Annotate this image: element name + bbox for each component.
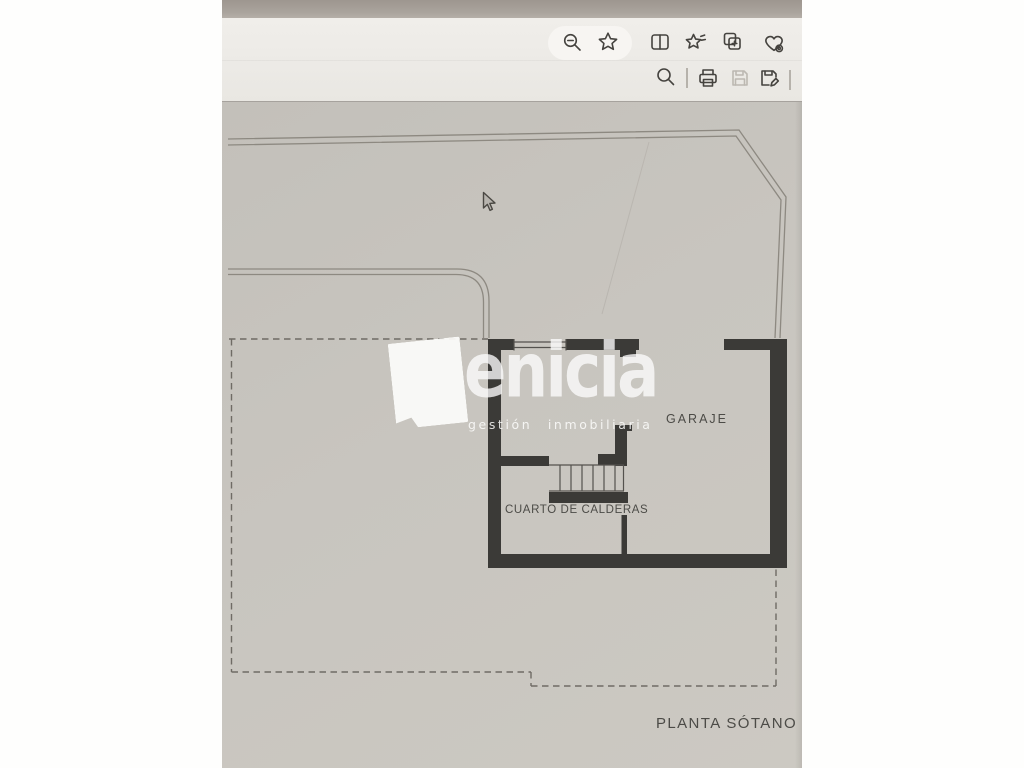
web-capture-icon[interactable] [720, 29, 744, 53]
browser-essentials-icon[interactable] [762, 31, 786, 55]
page-edge-shadow [795, 102, 802, 768]
find-in-document-icon[interactable] [654, 65, 678, 89]
toolbar-row-separator [222, 60, 802, 61]
toolbar-divider [686, 68, 688, 88]
split-screen-icon[interactable] [648, 30, 672, 54]
garage-label: GARAJE [666, 412, 728, 426]
sheet-title: PLANTA SÓTANO [656, 715, 797, 732]
pdf-page-basement-plan: GARAJE CUARTO DE CALDERAS PLANTA SÓTANO … [222, 102, 802, 768]
save-icon[interactable] [728, 66, 752, 90]
floor-plan-drawing: GARAJE CUARTO DE CALDERAS PLANTA SÓTANO [222, 102, 802, 768]
mouse-cursor-icon [482, 191, 499, 214]
collections-icon[interactable] [684, 30, 708, 54]
save-as-icon[interactable] [757, 66, 781, 90]
screen: GARAJE CUARTO DE CALDERAS PLANTA SÓTANO … [0, 0, 1024, 768]
toolbar-divider [789, 70, 791, 90]
zoom-out-icon[interactable] [561, 31, 585, 55]
favorites-star-icon[interactable] [596, 30, 620, 54]
print-icon[interactable] [696, 66, 720, 90]
photo-top-edge [222, 0, 802, 18]
boiler-room-label: CUARTO DE CALDERAS [505, 504, 648, 516]
